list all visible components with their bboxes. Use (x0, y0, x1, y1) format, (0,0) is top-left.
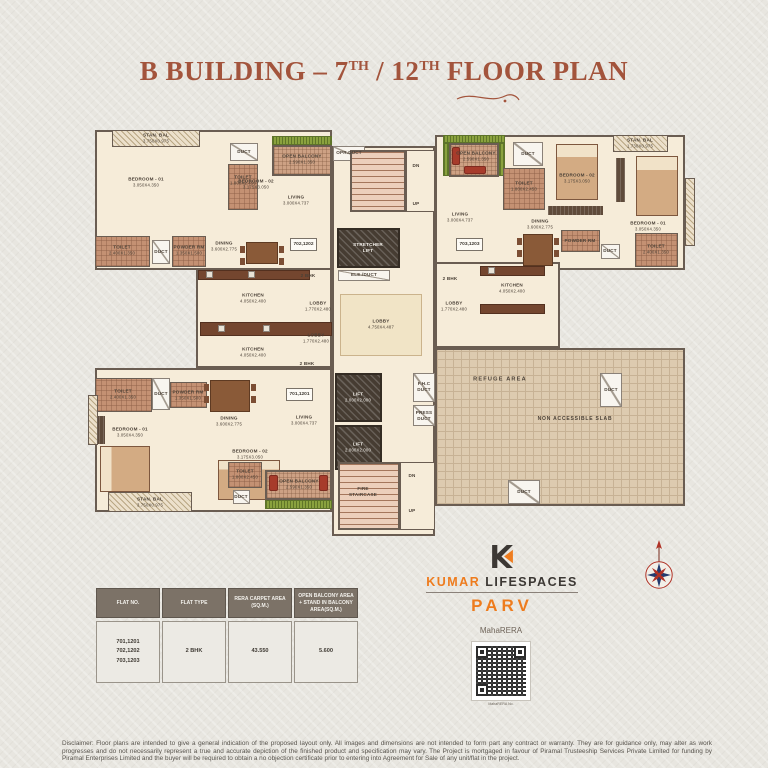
dining-table-furniture (523, 234, 553, 266)
dining-dim-702: 3.600X2.775 (211, 246, 237, 251)
kitchen-appliance (218, 325, 225, 332)
kitchen-dim-703: 4.050X2.400 (499, 288, 525, 293)
lobby-dim-703: 1.770X2.480 (441, 306, 467, 311)
wardrobe-furniture (616, 158, 625, 202)
open-balcony-dim-703: 2.590X1.350 (456, 156, 495, 161)
duct-label: DUCT (521, 151, 535, 157)
stretcher-lift-label: STRETCHER LIFT (349, 242, 387, 254)
stan-bal-dim-703: 1.730X0.975 (627, 143, 653, 148)
stan-bal-dim-701: 3.750X0.975 (137, 502, 163, 507)
living-dim-701: 3.000X4.737 (291, 420, 317, 425)
flat-no-line2: 702,1202 (116, 647, 139, 657)
flat-number-702: 702,1202 (290, 238, 317, 251)
duct-label: DUCT (154, 391, 168, 397)
qr-finder-icon (476, 646, 488, 658)
table-cell-balcony-area: 5.600 (294, 621, 358, 683)
bhk-label-703: 2 BHK (443, 276, 458, 282)
lobby-dim-701: 1.770X2.480 (303, 338, 329, 343)
flat-number-703: 703,1203 (456, 238, 483, 251)
bedroom2-dim-703: 3.175X3.050 (559, 178, 595, 183)
flat-703-label: 703,1203 (459, 242, 479, 247)
living-dim-702: 3.000X4.737 (283, 200, 309, 205)
kitchen-counter (480, 304, 545, 314)
title-part2: / 12 (369, 56, 420, 86)
powder-dim-701: 1.350X1.500 (173, 395, 204, 400)
kumar-logo-icon (489, 545, 515, 568)
main-staircase (350, 150, 406, 212)
flat-details-table: FLAT NO. FLAT TYPE RERA CARPET AREA (SQ.… (96, 588, 360, 683)
kitchen-dim-702: 4.050X2.400 (240, 298, 266, 303)
planter-strip (272, 136, 332, 145)
bed-furniture (636, 156, 678, 216)
dn-label-bottom: DN (408, 473, 415, 479)
toilet-dim-703: 1.800X2.450 (511, 186, 537, 191)
bhk-label-701: 2 BHK (300, 361, 315, 367)
dn-label: DN (412, 163, 419, 169)
up-label: UP (413, 201, 420, 207)
brand-divider (426, 592, 578, 593)
table-header-carpet-area: RERA CARPET AREA (SQ.M.) (228, 588, 292, 618)
stand-balcony-edge (685, 178, 695, 246)
kitchen-appliance (488, 267, 495, 274)
table-cell-flat-type: 2 BHK (162, 621, 226, 683)
sofa-furniture (464, 166, 486, 174)
lobby-dim-702: 1.770X2.480 (305, 306, 331, 311)
qr-pattern (476, 646, 526, 696)
kitchen-appliance (263, 325, 270, 332)
floor-plan-page: { "title":{"p1":"B BUILDING – 7","s1":"T… (0, 0, 768, 768)
duct-label: DUCT (234, 494, 248, 500)
bedroom1-dim-702: 3.050X4.350 (128, 182, 164, 187)
title-sup2: TH (419, 58, 439, 74)
duct-label: DUCT (237, 149, 251, 155)
title-part1: B BUILDING – 7 (140, 56, 349, 86)
title-part3: FLOOR PLAN (440, 56, 629, 86)
duct-label: DUCT (603, 248, 617, 254)
flat-no-line1: 701,1201 (116, 638, 139, 648)
ele-duct-label: ELE./DUCT (351, 272, 377, 278)
bed-furniture (100, 446, 150, 492)
project-name-parv: PARV (418, 596, 586, 616)
stan-bal-dim: 3.750X0.975 (143, 138, 169, 143)
table-cell-carpet-area: 43.550 (228, 621, 292, 683)
bedroom2-dim-701: 3.175X3.050 (232, 454, 268, 459)
toilet-dim: 1.800X2.450 (230, 180, 256, 185)
opr-duct-label: OPR.DUCT (336, 150, 362, 156)
page-title: B BUILDING – 7TH / 12TH FLOOR PLAN (0, 56, 768, 87)
maharera-qr-code (471, 641, 531, 701)
bhk-label-702: 2 BHK (301, 273, 316, 279)
brand-kumar: KUMAR (426, 575, 480, 589)
brand-name: KUMAR LIFESPACES (418, 575, 586, 589)
sofa-furniture (269, 475, 278, 491)
up-label-bottom: UP (409, 508, 416, 514)
dining-dim-701: 3.600X2.775 (216, 421, 242, 426)
stair-landing-bottom (400, 462, 435, 530)
powder-label-703: POWDER RM (565, 238, 596, 244)
qr-finder-icon (476, 684, 488, 696)
planter-strip (265, 500, 332, 509)
refuge-area (435, 348, 685, 506)
toilet-small-dim-703: 2.400X1.350 (643, 249, 669, 254)
maharera-label: MahaRERA (455, 626, 547, 635)
sofa-furniture (319, 475, 328, 491)
toilet-small-dim: 2.400X1.350 (109, 250, 135, 255)
stand-balcony-edge (88, 395, 98, 445)
kumar-lifespaces-logo: KUMAR LIFESPACES PARV (418, 545, 586, 616)
non-accessible-slab-label: NON ACCESSIBLE SLAB (538, 416, 613, 423)
main-lobby-dim: 4.750X4.487 (368, 324, 394, 329)
wardrobe-furniture (548, 206, 603, 215)
press-duct-label: PRESS DUCT (414, 410, 434, 422)
compass-icon (641, 540, 677, 590)
toilet-dim-701: 1.800X2.450 (232, 474, 258, 479)
toilet-small-dim-701: 2.400X1.350 (110, 394, 136, 399)
brand-lifespaces: LIFESPACES (485, 575, 578, 589)
floor-plan: STAN. BAL3.750X0.975 BEDROOM - 013.050X4… (88, 116, 696, 536)
bedroom1-dim-701: 3.050X4.350 (112, 432, 148, 437)
planter-strip (443, 135, 505, 143)
refuge-area-label: REFUGE AREA (473, 376, 527, 383)
fire-staircase-label: FIRE STAIRCASE (348, 486, 378, 498)
table-header-flat-no: FLAT NO. (96, 588, 160, 618)
bedroom1-dim-703: 3.050X4.350 (630, 226, 666, 231)
flat-702-label: 702,1202 (293, 242, 313, 247)
table-header-flat-type: FLAT TYPE (162, 588, 226, 618)
open-balcony-dim-701: 2.590X1.350 (279, 484, 318, 489)
fhc-duct-label: F.H.C DUCT (414, 381, 434, 393)
maharera-number-caption: MahaRERA No. (452, 702, 550, 706)
duct-label: DUCT (517, 489, 531, 495)
lift2-dim: 2.000X2.000 (345, 447, 371, 452)
dining-table-furniture (210, 380, 250, 412)
dining-dim-703: 3.600X2.775 (527, 224, 553, 229)
qr-finder-icon (514, 646, 526, 658)
disclaimer-text: Disclaimer: Floor plans are intended to … (62, 740, 712, 763)
powder-dim: 1.350X1.500 (174, 250, 205, 255)
dining-table-furniture (246, 242, 278, 264)
kitchen-appliance (206, 271, 213, 278)
table-header-balcony-area: OPEN BALCONY AREA + STAND IN BALCONY ARE… (294, 588, 358, 618)
duct-label: DUCT (604, 387, 618, 393)
kitchen-dim-701: 4.050X2.400 (240, 352, 266, 357)
flat-701-label: 701,1201 (289, 392, 309, 397)
table-cell-flat-no: 701,1201 702,1202 703,1203 (96, 621, 160, 683)
lift1-dim: 2.000X2.000 (345, 397, 371, 402)
flat-number-701: 701,1201 (286, 388, 313, 401)
stair-landing-top (406, 150, 435, 212)
open-balcony-dim: 2.590X1.350 (282, 159, 321, 164)
title-flourish-icon (455, 90, 521, 106)
title-sup1: TH (349, 58, 369, 74)
flat-no-line3: 703,1203 (116, 657, 139, 667)
duct-label: DUCT (154, 249, 168, 255)
living-dim-703: 3.000X4.737 (447, 217, 473, 222)
kitchen-appliance (248, 271, 255, 278)
